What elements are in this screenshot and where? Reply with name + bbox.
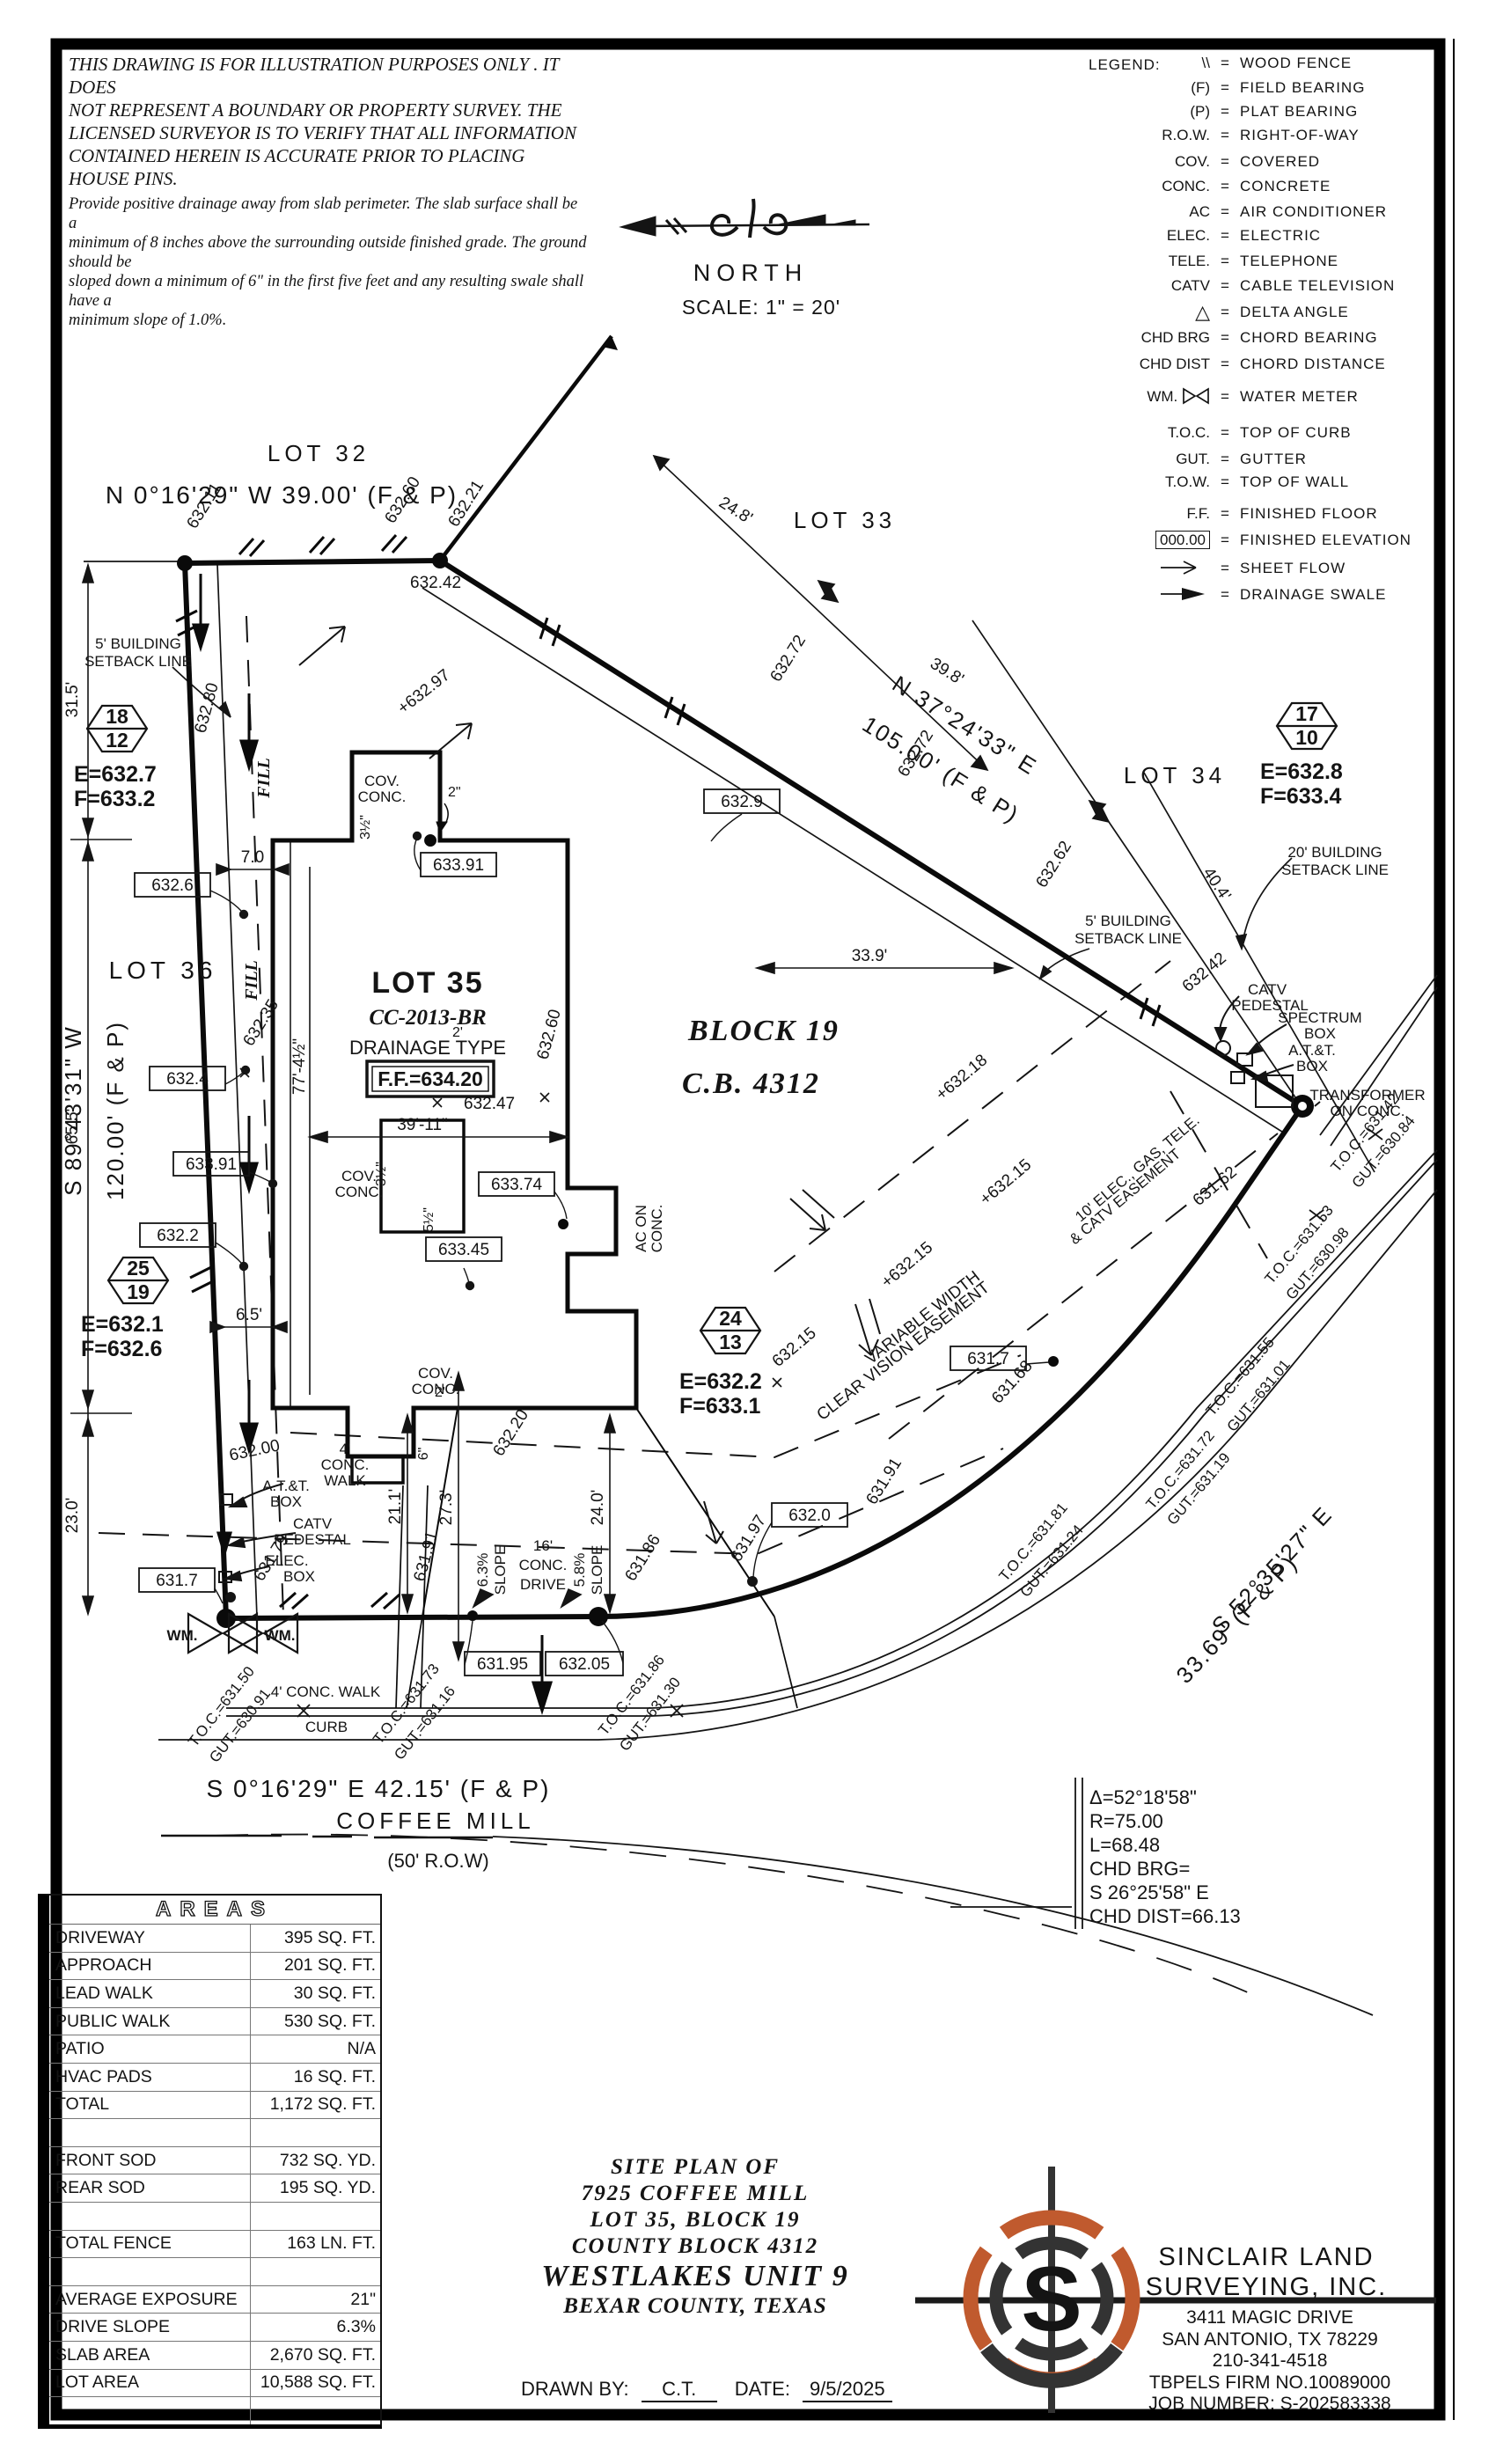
spot-elev: 632.20 <box>489 1406 532 1459</box>
cov-label-top: COV. <box>364 773 400 789</box>
legend-desc: DRAINAGE SWALE <box>1240 586 1439 604</box>
row-value: 6.3% <box>250 2314 380 2341</box>
legend-desc: ELECTRIC <box>1240 227 1439 245</box>
row-value: 30 SQ. FT. <box>250 1980 380 2007</box>
row-value: 16 SQ. FT. <box>250 2064 380 2091</box>
wm-label: WM. <box>265 1627 296 1644</box>
row-value <box>250 2258 380 2285</box>
boxed-elev: 632.6 <box>151 876 194 895</box>
row-label <box>49 2203 250 2230</box>
drainage-type: DRAINAGE TYPE <box>349 1037 506 1059</box>
company-job: JOB NUMBER: S-202583338 <box>1133 2394 1406 2416</box>
drainage-note-line: sloped down a minimum of 6" in the first… <box>69 272 588 311</box>
dim-31-5: 31.5' <box>63 682 82 718</box>
spot-elev: +632.18 <box>933 1051 992 1104</box>
monument-num: 24 <box>719 1307 742 1330</box>
ac-on-conc-1: AC ON <box>633 1205 649 1252</box>
monument-f: F=633.2 <box>74 787 155 811</box>
dim-77-4: 77'-4½" <box>290 1038 309 1095</box>
spot-elev: 632.00 <box>228 1436 282 1465</box>
legend-row: WM. =WATER METER <box>1096 387 1439 406</box>
title-block: SITE PLAN OF 7925 COFFEE MILL LOT 35, BL… <box>488 2154 902 2320</box>
legend-desc: CONCRETE <box>1240 178 1439 195</box>
drive-flare-right <box>774 1617 797 1708</box>
date-label: DATE: <box>735 2378 790 2400</box>
elec-box-label-1: ELEC. <box>265 1552 308 1569</box>
row-label: TOTAL <box>49 2092 250 2119</box>
delta-icon: △ <box>1096 301 1210 324</box>
legend-desc: WOOD FENCE <box>1240 55 1439 72</box>
table-row: AVERAGE EXPOSURE21" <box>49 2286 380 2314</box>
row-value: 395 SQ. FT. <box>250 1925 380 1952</box>
spot-elev: 632.62 <box>1032 838 1075 891</box>
row-value: 1,172 SQ. FT. <box>250 2092 380 2119</box>
boxed-elev: 631.7 <box>967 1350 1009 1368</box>
legend-desc: TELEPHONE <box>1240 253 1439 270</box>
legend-sym: T.O.C. <box>1096 424 1210 442</box>
corner-dot-ne <box>432 553 448 568</box>
dim-5half: 5½" <box>422 1207 436 1232</box>
plat-labels: N 0°16'29" W 39.00' (F & P) N 37°24'33" … <box>60 440 1426 1927</box>
spot-elev: 631.91 <box>411 1529 442 1584</box>
row-value: 732 SQ. YD. <box>250 2147 380 2174</box>
boxed-elev: 632.2 <box>157 1227 199 1245</box>
equals: = <box>1210 388 1240 406</box>
finished-elev-box: 000.00 <box>1155 531 1210 549</box>
row-label: LOT AREA <box>49 2370 250 2397</box>
legend-sym: CHD BRG <box>1096 329 1210 347</box>
table-row: LEAD WALK30 SQ. FT. <box>49 1980 380 2008</box>
company-firm: TBPELS FIRM NO.10089000 <box>1133 2372 1406 2394</box>
drainage-swale-sym <box>1096 586 1210 604</box>
sheet-flow-arrow-icon <box>704 1501 723 1544</box>
equals: = <box>1210 473 1240 491</box>
row-label <box>49 2397 250 2424</box>
row-value: N/A <box>250 2035 380 2063</box>
legend-row: T.O.W.=TOP OF WALL <box>1096 473 1439 491</box>
street-lines <box>158 975 1437 2015</box>
equals: = <box>1210 153 1240 171</box>
far-street-3 <box>493 1837 1373 2015</box>
monument-num: 10 <box>1295 726 1318 749</box>
bearing-left-2: 120.00' (F & P) <box>102 1021 128 1200</box>
fill-label: FILL <box>254 758 274 799</box>
monument-num: 13 <box>719 1331 742 1353</box>
dim-21-1: 21.1' <box>386 1489 405 1525</box>
monument-e: E=632.7 <box>74 762 157 787</box>
att-box2-label-2: BOX <box>1296 1058 1328 1074</box>
sheet-flow-arrow-icon <box>790 1190 834 1230</box>
legend-desc: RIGHT-OF-WAY <box>1240 127 1439 144</box>
legend-sym: COV. <box>1096 153 1210 171</box>
lot36-label: LOT 36 <box>109 957 217 984</box>
equals: = <box>1210 586 1240 604</box>
clear-vision-1: VARIABLE WIDTH <box>862 1267 983 1368</box>
legend-row: TELE.=TELEPHONE <box>1096 253 1439 270</box>
drainage-note-line: minimum of 8 inches above the surroundin… <box>69 233 588 272</box>
wood-fence-ticks <box>176 535 1160 1609</box>
legend-desc: SHEET FLOW <box>1240 560 1439 577</box>
company-name-1: SINCLAIR LAND <box>1133 2242 1399 2272</box>
equals: = <box>1210 253 1240 270</box>
dimension-lines <box>70 456 1109 1660</box>
slope-word: SLOPE <box>492 1545 509 1595</box>
legend-row: AC=AIR CONDITIONER <box>1096 203 1439 221</box>
boxed-elev: 633.74 <box>491 1176 543 1194</box>
boxed-elev: 633.91 <box>186 1155 237 1174</box>
company-phone: 210-341-4518 <box>1133 2350 1406 2372</box>
monument-num: 19 <box>127 1280 150 1303</box>
legend-row: GUT.=GUTTER <box>1096 451 1439 468</box>
monument-f: F=633.1 <box>679 1394 761 1419</box>
equals: = <box>1210 227 1240 245</box>
legend-desc: FIELD BEARING <box>1240 79 1439 97</box>
legend-desc: CHORD DISTANCE <box>1240 356 1439 373</box>
disclaimer-line: CONTAINED HEREIN IS ACCURATE PRIOR TO PL… <box>69 144 588 190</box>
row-label: LEAD WALK <box>49 1980 250 2007</box>
street-name-line <box>161 1836 493 1837</box>
curve-leader-lines <box>950 1778 1082 1929</box>
equals: = <box>1210 560 1240 577</box>
legend-desc: GUTTER <box>1240 451 1439 468</box>
legend-desc: FINISHED FLOOR <box>1240 505 1439 523</box>
dim-39-11: 39'-11" <box>397 1116 448 1134</box>
monument-num: 18 <box>106 705 128 728</box>
row-label <box>49 2119 250 2146</box>
cov-label-bot: COV. <box>418 1365 453 1382</box>
spot-dot <box>748 1577 757 1586</box>
street-row: (50' R.O.W) <box>387 1850 488 1872</box>
property-boundary <box>84 336 1314 1628</box>
boxed-elev: 632.4 <box>166 1070 209 1089</box>
row-label: REAR SOD <box>49 2174 250 2202</box>
finished-elev-sym: 000.00 <box>1096 532 1210 549</box>
title-line-2: 7925 COFFEE MILL <box>488 2181 902 2207</box>
cov-label-mid: COV. <box>341 1168 377 1184</box>
x-markers <box>240 1068 781 1387</box>
dim-2in: 2" <box>448 785 461 800</box>
row-label: DRIVE SLOPE <box>49 2314 250 2341</box>
legend-sym: CONC. <box>1096 178 1210 195</box>
legend-row: (P)=PLAT BEARING <box>1096 103 1439 121</box>
setback20-2: SETBACK LINE <box>1281 862 1389 878</box>
table-row-blank <box>49 2397 380 2424</box>
drive-label-1: 16' <box>533 1537 553 1554</box>
walk-label-2: CONC. <box>321 1456 370 1473</box>
street-name: COFFEE MILL <box>336 1808 534 1834</box>
water-meter-sym: WM. <box>1096 387 1210 406</box>
legend-sym: CATV <box>1096 277 1210 295</box>
equals: = <box>1210 329 1240 347</box>
curve-chd-label: CHD BRG= <box>1089 1858 1190 1880</box>
row-label: SLAB AREA <box>49 2342 250 2369</box>
legend-row: T.O.C.=TOP OF CURB <box>1096 424 1439 442</box>
monument-num: 25 <box>127 1257 150 1280</box>
table-row-blank <box>49 2258 380 2286</box>
catv-pedestal-arrow <box>218 1533 231 1554</box>
legend-desc: FINISHED ELEVATION <box>1240 532 1439 549</box>
att-box2-label-1: A.T.&T. <box>1288 1042 1336 1059</box>
catv-ped-label-2: PEDESTAL <box>274 1531 351 1548</box>
legend-desc: CHORD BEARING <box>1240 329 1439 347</box>
row-value: 163 LN. FT. <box>250 2231 380 2258</box>
spot-elev: +632.15 <box>977 1155 1036 1209</box>
legend-sym: F.F. <box>1096 505 1210 523</box>
row-label: FRONT SOD <box>49 2147 250 2174</box>
legend-sym: TELE. <box>1096 253 1210 270</box>
drawn-by-value: C.T. <box>642 2378 717 2402</box>
elec-box-label-2: BOX <box>283 1568 315 1585</box>
att-box-label-2: BOX <box>270 1493 302 1510</box>
setback5-right-1: 5' BUILDING <box>1085 913 1171 929</box>
row-label: AVERAGE EXPOSURE <box>49 2286 250 2314</box>
legend-row: CHD DIST=CHORD DISTANCE <box>1096 356 1439 373</box>
drive-label-2: CONC. <box>519 1557 568 1573</box>
monument-num: 12 <box>106 729 128 752</box>
company-city: SAN ANTONIO, TX 78229 <box>1133 2329 1406 2351</box>
legend-row: =DRAINAGE SWALE <box>1096 586 1439 604</box>
att-box-label-1: A.T.&T. <box>262 1478 310 1494</box>
equals: = <box>1210 532 1240 549</box>
curb-label: CURB <box>305 1719 348 1735</box>
north-label: NORTH <box>689 260 812 287</box>
bearing-curve-2: 33.69' (F & P) <box>1170 1550 1302 1689</box>
boxed-elev: 632.0 <box>788 1507 831 1525</box>
curve-radius: R=75.00 <box>1089 1810 1163 1832</box>
boxed-elev: 632.9 <box>721 793 763 811</box>
table-row: TOTAL1,172 SQ. FT. <box>49 2092 380 2120</box>
drawn-by-label: DRAWN BY: <box>521 2378 629 2400</box>
setback5-left-1: 5' BUILDING <box>95 635 181 652</box>
disclaimer-line: THIS DRAWING IS FOR ILLUSTRATION PURPOSE… <box>69 53 588 99</box>
row-label <box>49 2258 250 2285</box>
slope-word: SLOPE <box>589 1545 605 1595</box>
equals: = <box>1210 55 1240 72</box>
legend-sym: CHD DIST <box>1096 356 1210 373</box>
table-row: TOTAL FENCE163 LN. FT. <box>49 2231 380 2259</box>
dim-2in: 2" <box>435 1385 448 1400</box>
plan-code: CC-2013-BR <box>369 1006 486 1030</box>
table-row-blank <box>49 2203 380 2231</box>
boxed-elev: 632.05 <box>559 1655 610 1674</box>
disclaimer: THIS DRAWING IS FOR ILLUSTRATION PURPOSE… <box>69 53 588 330</box>
row-value: 530 SQ. FT. <box>250 2008 380 2035</box>
setback20-1: 20' BUILDING <box>1287 844 1382 861</box>
transformer-label-2: ON CONC. <box>1331 1103 1405 1119</box>
legend-row: CHD BRG=CHORD BEARING <box>1096 329 1439 347</box>
table-row: PUBLIC WALK530 SQ. FT. <box>49 2008 380 2036</box>
row-value: 201 SQ. FT. <box>250 1953 380 1980</box>
table-row: FRONT SOD732 SQ. YD. <box>49 2147 380 2175</box>
legend-desc: COVERED <box>1240 153 1439 171</box>
table-row: DRIVE SLOPE6.3% <box>49 2314 380 2342</box>
boxed-elev: 633.45 <box>438 1241 489 1259</box>
monument-f: F=633.4 <box>1260 784 1342 809</box>
monument-e: E=632.1 <box>81 1312 164 1337</box>
wood-fence-icon: \\ <box>1096 55 1210 72</box>
lot34-divider <box>972 620 1297 1100</box>
company-name: SINCLAIR LAND SURVEYING, INC. <box>1133 2242 1399 2302</box>
row-value: 21" <box>250 2286 380 2314</box>
table-row: HVAC PADS16 SQ. FT. <box>49 2064 380 2092</box>
company-address: 3411 MAGIC DRIVE SAN ANTONIO, TX 78229 2… <box>1133 2307 1406 2416</box>
sheet-flow-arrow-icon <box>429 723 472 759</box>
monument-e: E=632.2 <box>679 1369 762 1394</box>
lot32-33-divider <box>440 336 612 561</box>
table-row: APPROACH201 SQ. FT. <box>49 1953 380 1981</box>
curve-delta: Δ=52°18'58" <box>1089 1786 1197 1808</box>
company-name-2: SURVEYING, INC. <box>1133 2272 1399 2302</box>
dim-27-3: 27.3' <box>437 1490 456 1526</box>
setback5-right-2: SETBACK LINE <box>1074 930 1182 947</box>
title-line-5: WESTLAKES UNIT 9 <box>488 2260 902 2293</box>
equals: = <box>1210 424 1240 442</box>
legend-sym: ELEC. <box>1096 227 1210 245</box>
spot-elev: 632.15 <box>769 1324 820 1370</box>
corner-dot-drive <box>589 1607 608 1626</box>
dim-2ft: 2' <box>452 1025 463 1040</box>
table-row: SLAB AREA2,670 SQ. FT. <box>49 2342 380 2370</box>
legend-sym: (F) <box>1096 79 1210 97</box>
legend-sym: GUT. <box>1096 451 1210 468</box>
drive-label-3: DRIVE <box>520 1576 566 1593</box>
sheet-flow-sym <box>1096 560 1210 577</box>
utility-easement-2: & CATV EASEMENT <box>1067 1146 1184 1248</box>
areas-table-title: AREAS <box>49 1896 380 1925</box>
table-row: DRIVEWAY395 SQ. FT. <box>49 1925 380 1953</box>
legend-desc: PLAT BEARING <box>1240 103 1439 121</box>
legend-row: △=DELTA ANGLE <box>1096 301 1439 324</box>
legend-row: COV.=COVERED <box>1096 153 1439 171</box>
row-label: TOTAL FENCE <box>49 2231 250 2258</box>
lot35-label: LOT 35 <box>371 966 483 1000</box>
fill-label: FILL <box>242 960 261 1001</box>
easement-lines <box>99 616 1278 1616</box>
legend-sym: T.O.W. <box>1096 473 1210 491</box>
equals: = <box>1210 178 1240 195</box>
water-meter-icon <box>1182 387 1210 405</box>
slope-58: 5.8% <box>571 1553 588 1588</box>
legend-row: CATV=CABLE TELEVISION <box>1096 277 1439 295</box>
att-box2-icon <box>1231 1072 1244 1083</box>
legend-row: (F)=FIELD BEARING <box>1096 79 1439 97</box>
equals: = <box>1210 356 1240 373</box>
spectrum-label-1: SPECTRUM <box>1278 1009 1361 1026</box>
dim-24-8: 24.8' <box>715 494 756 528</box>
spot-632-47: 632.47 <box>464 1095 515 1113</box>
spot-dot <box>226 1593 235 1602</box>
lot33-label: LOT 33 <box>794 507 896 533</box>
legend-row: F.F.=FINISHED FLOOR <box>1096 505 1439 523</box>
row-label: DRIVEWAY <box>49 1925 250 1952</box>
legend-sym: (P) <box>1096 103 1210 121</box>
transformer-label-1: TRANSFORMER <box>1309 1087 1425 1104</box>
row-label: HVAC PADS <box>49 2064 250 2091</box>
title-line-1: SITE PLAN OF <box>488 2154 902 2181</box>
spot-elev: +632.97 <box>394 666 453 718</box>
finished-floor: F.F.=634.20 <box>378 1067 483 1090</box>
dim-6in: 6" <box>416 1448 431 1461</box>
curve-chd-dist: CHD DIST=66.13 <box>1089 1905 1241 1927</box>
dim-23-0: 23.0' <box>63 1498 82 1534</box>
dim-24-0: 24.0' <box>589 1490 607 1526</box>
monument-f: F=632.6 <box>81 1337 162 1361</box>
legend-desc: AIR CONDITIONER <box>1240 203 1439 221</box>
legend-row: R.O.W.=RIGHT-OF-WAY <box>1096 127 1439 144</box>
table-row: PATION/A <box>49 2035 380 2064</box>
dim-65-5: 65.5' <box>63 1109 82 1145</box>
dim-39-8: 39.8' <box>927 655 967 689</box>
sheet-flow-icon <box>1159 560 1210 576</box>
areas-table: AREAS DRIVEWAY395 SQ. FT. APPROACH201 SQ… <box>38 1894 382 2429</box>
monument-num: 17 <box>1295 702 1318 725</box>
dim-3half: 3½" <box>358 815 373 840</box>
conc-label-top: CONC. <box>358 788 407 805</box>
disclaimer-line: NOT REPRESENT A BOUNDARY OR PROPERTY SUR… <box>69 99 588 121</box>
wm-label: WM. <box>167 1627 198 1644</box>
conc-walk-label: 4' CONC. WALK <box>271 1683 381 1700</box>
equals: = <box>1210 304 1240 321</box>
dim-40-4: 40.4' <box>1199 864 1235 904</box>
lot34-label: LOT 34 <box>1124 762 1226 788</box>
setback5-left-2: SETBACK LINE <box>84 653 192 670</box>
catv-ped2-label-1: CATV <box>1248 981 1287 998</box>
legend-row: =SHEET FLOW <box>1096 560 1439 577</box>
legend-row: ELEC.=ELECTRIC <box>1096 227 1439 245</box>
company-street: 3411 MAGIC DRIVE <box>1133 2307 1406 2329</box>
walk-label-3: WALK <box>324 1472 366 1489</box>
row-value: 10,588 SQ. FT. <box>250 2370 380 2397</box>
logo-s: S <box>1021 2248 1082 2350</box>
legend-desc: TOP OF CURB <box>1240 424 1439 442</box>
ac-on-conc-2: CONC. <box>649 1205 665 1253</box>
legend-desc: CABLE TELEVISION <box>1240 277 1439 295</box>
spot-elev: 632.42 <box>410 574 461 592</box>
equals: = <box>1210 505 1240 523</box>
legend-row: 000.00=FINISHED ELEVATION <box>1096 532 1439 549</box>
monument-e: E=632.8 <box>1260 759 1343 784</box>
legend-sym: R.O.W. <box>1096 127 1210 144</box>
row-value: 195 SQ. YD. <box>250 2174 380 2202</box>
equals: = <box>1210 451 1240 468</box>
boxed-elev: 633.91 <box>433 856 484 875</box>
table-row: REAR SOD195 SQ. YD. <box>49 2174 380 2203</box>
dim-7-0: 7.0 <box>241 848 264 867</box>
curve-length: L=68.48 <box>1089 1834 1160 1856</box>
legend-sym: AC <box>1096 203 1210 221</box>
site-plan-page: N 0°16'29" W 39.00' (F & P) N 37°24'33" … <box>0 0 1496 2464</box>
equals: = <box>1210 79 1240 97</box>
dim-3half: 3½" <box>374 1162 389 1186</box>
row-value <box>250 2119 380 2146</box>
title-line-6: BEXAR COUNTY, TEXAS <box>488 2293 902 2320</box>
table-row-blank <box>49 2119 380 2147</box>
slope-63: 6.3% <box>474 1553 491 1588</box>
corner-dot-nw <box>177 555 193 571</box>
cb-label: C.B. 4312 <box>682 1067 820 1100</box>
legend-row: CONC.=CONCRETE <box>1096 178 1439 195</box>
spot-elev: 632.35 <box>239 996 282 1049</box>
spot-elev: 631.86 <box>621 1531 664 1584</box>
spectrum-label-2: BOX <box>1304 1025 1336 1042</box>
dim-33-9: 33.9' <box>852 947 888 965</box>
row-value: 2,670 SQ. FT. <box>250 2342 380 2369</box>
sheet-flow-arrow-icon <box>299 627 345 665</box>
equals: = <box>1210 127 1240 144</box>
lot32-label: LOT 32 <box>268 440 370 466</box>
bearing-bottom: S 0°16'29" E 42.15' (F & P) <box>207 1775 551 1802</box>
catv-ped-label-1: CATV <box>293 1515 333 1532</box>
